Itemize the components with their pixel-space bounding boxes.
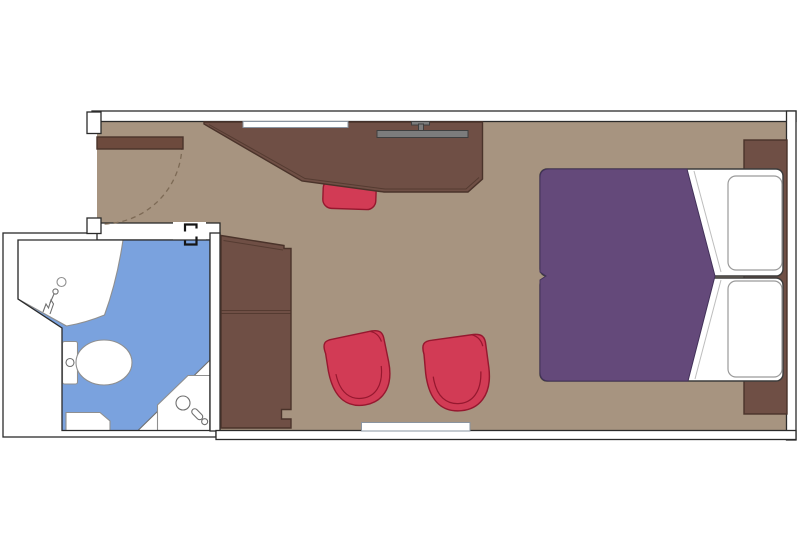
- toilet: [63, 340, 133, 385]
- cabin-floor-plan: [0, 0, 800, 553]
- pillow-top: [728, 176, 782, 270]
- bathroom-cabinet: [66, 413, 110, 431]
- right-wall: [787, 111, 797, 440]
- bathroom: [3, 222, 220, 437]
- mirror-strip: [243, 122, 348, 128]
- pillow-bottom: [728, 281, 782, 377]
- entry-door: [97, 137, 183, 149]
- left-wall-stub-top: [87, 112, 101, 134]
- bottom-wall: [216, 431, 796, 440]
- floor-plan-svg: [0, 0, 800, 553]
- blanket: [540, 169, 715, 381]
- divider-wall: [210, 233, 220, 431]
- basin-drain-icon: [57, 278, 66, 287]
- double-bed: [540, 169, 783, 381]
- left-wall-stub-bottom: [87, 218, 101, 234]
- wardrobe: [221, 236, 291, 429]
- top-wall: [92, 111, 796, 122]
- window-strip: [362, 423, 471, 432]
- tv-screen: [377, 131, 468, 138]
